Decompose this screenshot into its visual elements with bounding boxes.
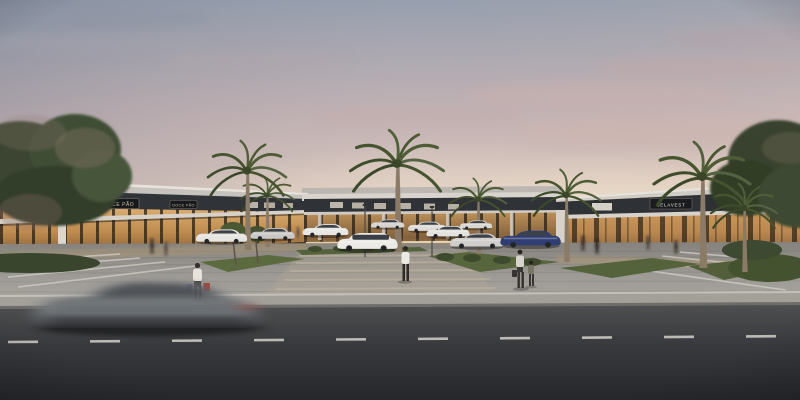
shopping-center-rendering: DOCE PÃO DOCE PÃO [0, 0, 800, 400]
rendering-canvas: DOCE PÃO DOCE PÃO [0, 0, 800, 400]
vignette [0, 0, 800, 400]
